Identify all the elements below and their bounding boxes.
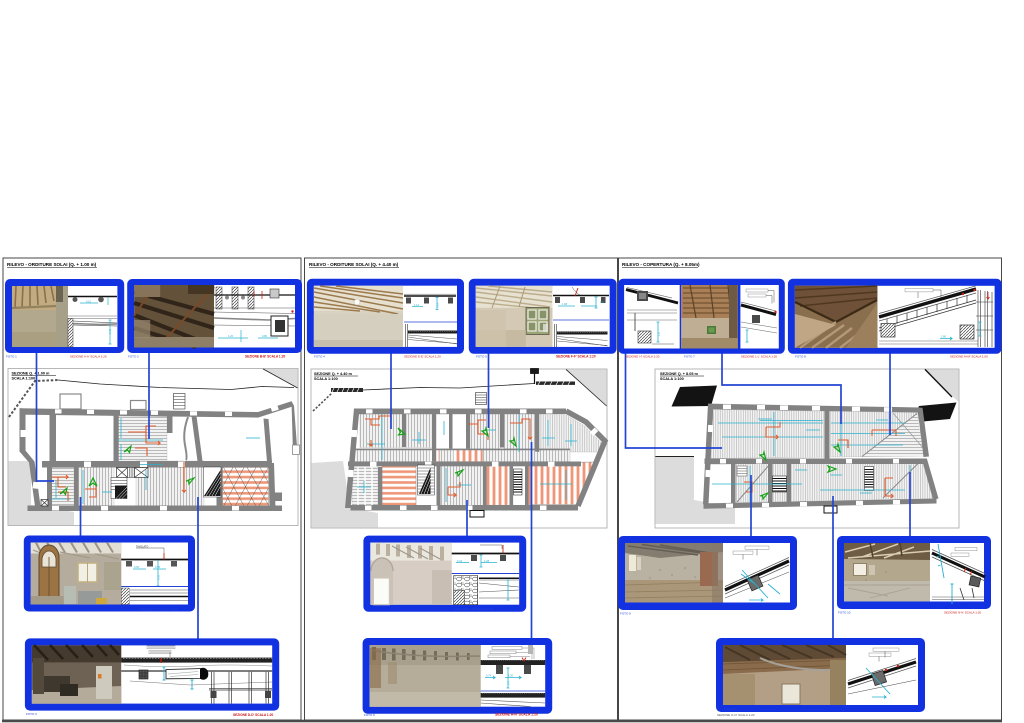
svg-text:SEZIONE F-F' SCALA 1:20: SEZIONE F-F' SCALA 1:20	[556, 355, 596, 359]
svg-text:SEZIONE Q. + 1.00 m: SEZIONE Q. + 1.00 m	[12, 372, 51, 376]
svg-text:1.9: 1.9	[657, 332, 661, 336]
svg-text:RILEVO - ORDITURE SOLAI (Q. +: RILEVO - ORDITURE SOLAI (Q. + 1.00 m)	[7, 262, 97, 267]
svg-text:SCALA 1:100: SCALA 1:100	[314, 377, 338, 381]
svg-text:1.10: 1.10	[414, 303, 420, 307]
svg-text:TAVOLATO: TAVOLATO	[136, 546, 148, 549]
svg-text:SEZIONE E-E' SCALA 1:20: SEZIONE E-E' SCALA 1:20	[404, 355, 441, 359]
svg-text:SEZIONE H-H' SCALA 1:20: SEZIONE H-H' SCALA 1:20	[495, 713, 538, 717]
svg-text:SCALA 1:100: SCALA 1:100	[12, 377, 36, 381]
svg-text:1.30: 1.30	[508, 674, 514, 678]
svg-text:0.50: 0.50	[134, 565, 140, 569]
svg-text:1.20: 1.20	[228, 334, 234, 338]
svg-text:RILEVO - COPERTURA (Q. + 8.05m: RILEVO - COPERTURA (Q. + 8.05m)	[622, 262, 700, 267]
svg-text:SEZIONE Q. + 8.05 m: SEZIONE Q. + 8.05 m	[660, 372, 699, 376]
svg-text:0.80: 0.80	[262, 334, 268, 338]
svg-text:0.43: 0.43	[457, 559, 463, 563]
svg-text:0.2: 0.2	[600, 300, 604, 304]
svg-text:SEZIONE D-D' SCALA 1:20: SEZIONE D-D' SCALA 1:20	[233, 713, 274, 717]
svg-text:RILEVO - ORDITURE SOLAI (Q. +: RILEVO - ORDITURE SOLAI (Q. + 4.40 m)	[309, 262, 399, 267]
svg-text:FOTO 3: FOTO 3	[26, 712, 37, 716]
svg-text:SEZIONE I-I' SCALA 1:20: SEZIONE I-I' SCALA 1:20	[625, 355, 660, 359]
svg-text:0.45: 0.45	[108, 328, 112, 334]
svg-text:SEZIONE Q. + 4.40 m: SEZIONE Q. + 4.40 m	[314, 372, 353, 376]
svg-text:2.95: 2.95	[157, 574, 161, 580]
svg-text:FOTO 5: FOTO 5	[476, 355, 487, 359]
svg-text:FOTO 1: FOTO 1	[6, 355, 17, 359]
svg-text:2.80: 2.80	[941, 335, 947, 339]
svg-text:0.4: 0.4	[507, 681, 511, 685]
svg-text:1.28: 1.28	[484, 559, 490, 563]
svg-text:SEZIONE O-O' SCALA 1:20: SEZIONE O-O' SCALA 1:20	[717, 713, 755, 717]
svg-text:FOTO 11: FOTO 11	[724, 707, 737, 711]
svg-text:SEZIONE G-G' SCALA 1:20: SEZIONE G-G' SCALA 1:20	[455, 607, 493, 611]
svg-text:FOTO 4: FOTO 4	[314, 355, 325, 359]
svg-text:SEZIONE C-C' SCALA 1:20: SEZIONE C-C' SCALA 1:20	[140, 608, 177, 612]
svg-text:FOTO 2: FOTO 2	[128, 355, 139, 359]
svg-text:SEZIONE N-N' SCALA 1:20: SEZIONE N-N' SCALA 1:20	[944, 611, 981, 615]
svg-text:SEZIONE M-M' SCALA 1:50: SEZIONE M-M' SCALA 1:50	[950, 355, 988, 359]
svg-text:0.22: 0.22	[436, 302, 440, 308]
svg-text:SCALA 1:100: SCALA 1:100	[660, 377, 684, 381]
svg-text:SEZIONE A-A' SCALA 1:20: SEZIONE A-A' SCALA 1:20	[70, 355, 107, 359]
svg-text:FOTO 10: FOTO 10	[838, 611, 851, 615]
svg-text:1.08: 1.08	[562, 302, 568, 306]
svg-text:FOTO 8: FOTO 8	[795, 355, 806, 359]
svg-text:FOTO 6: FOTO 6	[364, 713, 375, 717]
svg-text:0.74: 0.74	[486, 674, 492, 678]
svg-text:SEZIONE B-B' SCALA 1:20: SEZIONE B-B' SCALA 1:20	[245, 355, 286, 359]
svg-text:FOTO 9: FOTO 9	[620, 612, 631, 616]
svg-text:4.10: 4.10	[86, 300, 92, 304]
svg-text:SEZIONE L-L' SCALA 1:20: SEZIONE L-L' SCALA 1:20	[741, 355, 777, 359]
svg-text:FOTO 7: FOTO 7	[684, 355, 695, 359]
